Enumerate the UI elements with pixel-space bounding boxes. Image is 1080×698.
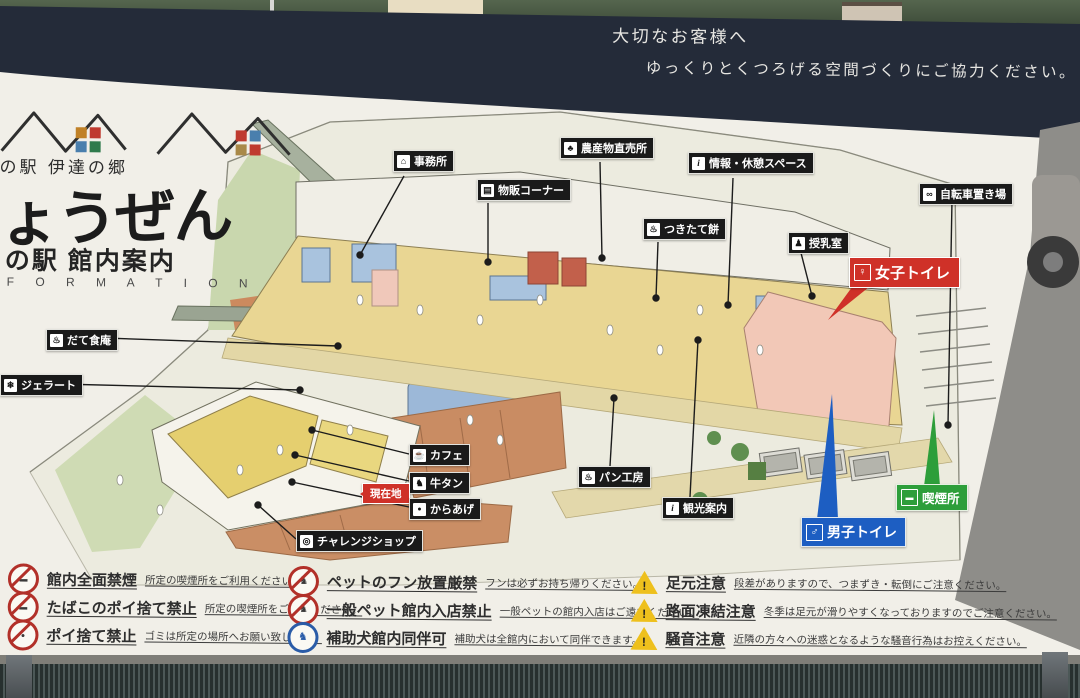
label-text: カフェ — [430, 447, 463, 463]
label-text: 事務所 — [414, 153, 447, 169]
map-label-nursing-room: 授乳室 — [788, 232, 849, 254]
map-label-gelato: ジェラート — [0, 374, 83, 396]
rule-note: 所定の喫煙所をご利用ください。 — [145, 573, 303, 589]
no-pet-waste-icon — [288, 566, 319, 597]
rule-note: 段差がありますので、つまずき・転倒にご注意ください。 — [734, 576, 1006, 593]
female-icon — [854, 264, 871, 281]
rule-title: 一般ペット館内入店禁止 — [327, 599, 492, 621]
map-label-farm-market: 農産物直売所 — [560, 137, 654, 159]
cigarette-icon — [19, 573, 27, 584]
map-label-challenge-shop: チャレンジショップ — [296, 530, 423, 552]
rule-title: ポイ捨て禁止 — [46, 625, 136, 647]
pet-icon — [298, 576, 308, 587]
caution-ice-icon — [631, 599, 658, 622]
beef-icon — [413, 477, 426, 490]
label-text: 観光案内 — [683, 500, 727, 516]
caution-noise-icon — [630, 627, 657, 650]
label-text: 男子トイレ — [827, 522, 897, 542]
produce-icon — [564, 142, 577, 155]
rule-note: フンは必ずお持ち帰りください。 — [485, 576, 643, 592]
label-text: 自転車置き場 — [940, 186, 1006, 202]
label-text: つきたて餅 — [664, 221, 719, 237]
no-cigarette-litter-icon — [8, 591, 39, 622]
rule-title: 補助犬館内同伴可 — [326, 627, 446, 649]
map-label-womens-toilet: 女子トイレ — [849, 257, 960, 288]
shop-icon — [300, 535, 313, 548]
signboard-post-left — [6, 655, 32, 698]
current-location-marker: 現在地 — [362, 483, 410, 504]
signboard-photo: 大切なお客様へ ゆっくりとくつろげる空間づくりにご協力ください。 の駅 伊達の郷… — [0, 0, 1080, 698]
map-label-office: 事務所 — [393, 150, 454, 172]
rule-title: たばこのポイ捨て禁止 — [47, 597, 197, 619]
litter-icon — [21, 629, 25, 640]
signboard-post-right — [1042, 652, 1068, 698]
rules-section: 館内全面禁煙 所定の喫煙所をご利用ください。 たばこのポイ捨て禁止 所定の喫煙所… — [0, 0, 1080, 698]
rule-title: 館内全面禁煙 — [47, 569, 137, 591]
label-text: 牛タン — [430, 475, 463, 491]
map-label-mens-toilet: 男子トイレ — [801, 517, 906, 547]
rule-title: ペットのフン放置厳禁 — [327, 571, 477, 593]
label-text: 女子トイレ — [875, 262, 950, 283]
label-text: ジェラート — [21, 377, 76, 393]
map-label-bicycle-parking: 自転車置き場 — [919, 183, 1013, 205]
rule-caution-noise: 騒音注意 近隣の方々への迷惑となるような騒音行為はお控えください。 — [630, 627, 1027, 653]
info-icon — [692, 157, 705, 170]
tourist-info-icon — [666, 502, 679, 515]
label-text: 農産物直売所 — [581, 140, 647, 156]
shopping-icon — [481, 184, 494, 197]
label-text: 授乳室 — [809, 235, 842, 251]
no-littering-icon — [7, 619, 38, 650]
map-label-mochi: つきたて餅 — [643, 218, 726, 240]
office-icon — [397, 155, 410, 168]
caution-step-icon — [631, 571, 658, 594]
label-text: チャレンジショップ — [317, 533, 416, 549]
label-text: パン工房 — [599, 469, 644, 485]
rule-note: 近隣の方々への迷惑となるような騒音行為はお控えください。 — [733, 632, 1026, 650]
karaage-icon — [413, 503, 426, 516]
label-text: 物販コーナー — [498, 182, 564, 198]
rule-assistance-dog-ok: 補助犬館内同伴可 補助犬は全館内において同伴できます。 — [287, 622, 642, 656]
nursing-icon — [792, 237, 805, 250]
mochi-icon — [647, 223, 660, 236]
cafe-icon — [413, 449, 426, 462]
rule-caution-ice: 路面凍結注意 冬季は足元が滑りやすくなっておりますのでご注意ください。 — [631, 599, 1057, 626]
label-text: だて食庵 — [67, 332, 111, 348]
rule-title: 路面凍結注意 — [666, 600, 756, 622]
restaurant-icon — [50, 334, 63, 347]
map-label-tourist-info: 観光案内 — [662, 497, 734, 519]
map-label-smoking-area: 喫煙所 — [896, 484, 968, 511]
bicycle-icon — [923, 188, 936, 201]
map-label-info-rest: 情報・休憩スペース — [688, 152, 814, 174]
label-text: からあげ — [430, 501, 474, 517]
rule-title: 騒音注意 — [665, 628, 725, 650]
rule-title: 足元注意 — [666, 572, 726, 594]
pet-icon — [298, 632, 308, 643]
male-icon — [806, 524, 823, 541]
label-text: 現在地 — [370, 486, 402, 501]
gelato-icon — [4, 379, 17, 392]
label-text: 情報・休憩スペース — [709, 155, 807, 171]
map-label-date-shokuan: だて食庵 — [46, 329, 118, 351]
label-text: 喫煙所 — [922, 488, 960, 507]
no-smoking-icon — [8, 563, 39, 594]
rule-note: 補助犬は全館内において同伴できます。 — [454, 631, 642, 648]
map-label-cafe: カフェ — [409, 444, 470, 466]
smoking-icon — [901, 489, 918, 506]
assistance-dog-icon — [287, 622, 318, 653]
map-label-karaage: からあげ — [409, 498, 481, 520]
pet-icon — [298, 604, 308, 615]
cigarette-icon — [19, 601, 27, 612]
map-label-gyutan: 牛タン — [409, 472, 470, 494]
rule-no-littering: ポイ捨て禁止 ゴミは所定の場所へお願い致します。 — [7, 619, 322, 653]
rule-caution-step: 足元注意 段差がありますので、つまずき・転倒にご注意ください。 — [631, 571, 1007, 597]
bread-icon — [582, 471, 595, 484]
map-label-shop-corner: 物販コーナー — [477, 179, 571, 201]
no-pets-icon — [288, 594, 319, 625]
rule-note: 冬季は足元が滑りやすくなっておりますのでご注意ください。 — [764, 604, 1057, 622]
map-label-bakery: パン工房 — [578, 466, 651, 488]
